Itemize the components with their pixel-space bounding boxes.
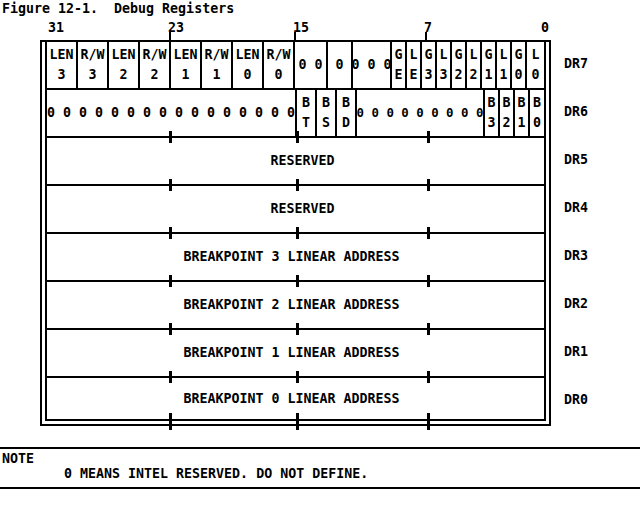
dr6-cell-b0: B0 [530, 90, 544, 136]
bit-tick-23 [169, 32, 171, 40]
dr7-cell-l3: L3 [437, 42, 452, 88]
figure-title: Figure 12-1. Debug Registers [2, 2, 234, 15]
dr7-cell-len3: LEN3 [47, 42, 78, 88]
register-row-dr3: BREAKPOINT 3 LINEAR ADDRESS [47, 234, 544, 280]
byte-tick [427, 131, 430, 143]
dr6-cell-bd: BD [337, 90, 357, 136]
row-separator [47, 328, 544, 330]
register-row-dr6: 0 0 0 0 0 0 0 0 0 0 0 0 0 0 0 0 BT BS BD… [47, 90, 544, 136]
register-name-dr3: DR3 [564, 232, 588, 280]
dr7-cell-l1: L1 [497, 42, 512, 88]
dr7-cell-l2: L2 [467, 42, 482, 88]
dr7-cell-g2: G2 [452, 42, 467, 88]
register-name-dr1: DR1 [564, 328, 588, 376]
dr7-cell-le: LE [407, 42, 422, 88]
dr6-cell-zeros-mid: 0 0 0 0 0 0 0 0 0 [357, 90, 485, 136]
register-box: LEN3 R/W3 LEN2 R/W2 LEN1 R/W1 LEN0 R/W0 … [40, 40, 551, 426]
dr7-cell-zeros-b: 0 [328, 42, 353, 88]
row-separator [47, 184, 544, 186]
row-separator [47, 136, 544, 138]
dr7-cell-rw1: R/W1 [202, 42, 233, 88]
dr6-cell-zeros-high: 0 0 0 0 0 0 0 0 0 0 0 0 0 0 0 0 [47, 90, 297, 136]
register-name-labels: DR7 DR6 DR5 DR4 DR3 DR2 DR1 DR0 [564, 40, 588, 424]
byte-tick [169, 371, 172, 383]
byte-tick [169, 323, 172, 335]
register-name-dr5: DR5 [564, 136, 588, 184]
byte-tick [427, 227, 430, 239]
dr7-cell-rw2: R/W2 [140, 42, 171, 88]
byte-tick [296, 131, 299, 143]
byte-tick [427, 371, 430, 383]
byte-tick [296, 371, 299, 383]
byte-tick [296, 179, 299, 191]
bit-tick-15 [294, 32, 296, 40]
dr7-cell-rw0: R/W0 [264, 42, 295, 88]
dr6-cell-bs: BS [317, 90, 337, 136]
byte-tick [427, 413, 430, 430]
dr4-reserved-text: RESERVED [47, 186, 544, 232]
register-name-dr6: DR6 [564, 88, 588, 136]
byte-tick [169, 131, 172, 143]
dr5-reserved-text: RESERVED [47, 138, 544, 184]
dr6-cell-b2: B2 [500, 90, 515, 136]
dr7-cell-zeros-a: 0 0 [295, 42, 328, 88]
dr7-cell-g0: G0 [512, 42, 527, 88]
note-text: 0 MEANS INTEL RESERVED. DO NOT DEFINE. [64, 467, 368, 480]
note-label: NOTE [2, 452, 34, 465]
byte-tick [169, 413, 172, 430]
dr6-cell-bt: BT [297, 90, 317, 136]
dr7-cell-l0: L0 [527, 42, 544, 88]
row-separator [47, 88, 544, 90]
note-top-rule [0, 447, 640, 449]
register-name-dr7: DR7 [564, 40, 588, 88]
byte-tick [296, 323, 299, 335]
register-row-dr2: BREAKPOINT 2 LINEAR ADDRESS [47, 282, 544, 328]
register-row-dr7: LEN3 R/W3 LEN2 R/W2 LEN1 R/W1 LEN0 R/W0 … [47, 42, 544, 88]
dr7-cell-rw3: R/W3 [78, 42, 109, 88]
row-separator [47, 280, 544, 282]
bit-tick-7 [425, 32, 427, 40]
register-box-inner: LEN3 R/W3 LEN2 R/W2 LEN1 R/W1 LEN0 R/W0 … [45, 42, 546, 421]
byte-tick [296, 227, 299, 239]
bit-label-0: 0 [541, 21, 549, 34]
dr2-breakpoint-text: BREAKPOINT 2 LINEAR ADDRESS [47, 282, 544, 328]
register-name-dr4: DR4 [564, 184, 588, 232]
register-row-dr1: BREAKPOINT 1 LINEAR ADDRESS [47, 330, 544, 376]
dr7-cell-len0: LEN0 [233, 42, 264, 88]
byte-tick [296, 413, 299, 430]
dr6-cell-b1: B1 [515, 90, 530, 136]
dr7-cell-len2: LEN2 [109, 42, 140, 88]
byte-tick [296, 275, 299, 287]
dr7-cell-ge: GE [392, 42, 407, 88]
dr7-cell-zeros-c: 0 0 0 [353, 42, 392, 88]
byte-tick [169, 227, 172, 239]
byte-tick [169, 275, 172, 287]
dr1-breakpoint-text: BREAKPOINT 1 LINEAR ADDRESS [47, 330, 544, 376]
dr7-cell-g1: G1 [482, 42, 497, 88]
byte-tick [427, 179, 430, 191]
register-row-dr4: RESERVED [47, 186, 544, 232]
note-bottom-rule [0, 487, 640, 489]
row-separator [47, 232, 544, 234]
byte-tick [169, 179, 172, 191]
register-row-dr5: RESERVED [47, 138, 544, 184]
byte-tick [427, 323, 430, 335]
row-separator [47, 376, 544, 378]
dr3-breakpoint-text: BREAKPOINT 3 LINEAR ADDRESS [47, 234, 544, 280]
debug-registers-figure-page: Figure 12-1. Debug Registers 31 23 15 7 … [0, 0, 640, 516]
register-name-dr0: DR0 [564, 376, 588, 424]
bit-label-31: 31 [48, 21, 64, 34]
dr6-cell-b3: B3 [485, 90, 500, 136]
dr7-cell-g3: G3 [422, 42, 437, 88]
register-name-dr2: DR2 [564, 280, 588, 328]
dr7-cell-len1: LEN1 [171, 42, 202, 88]
byte-tick [427, 275, 430, 287]
